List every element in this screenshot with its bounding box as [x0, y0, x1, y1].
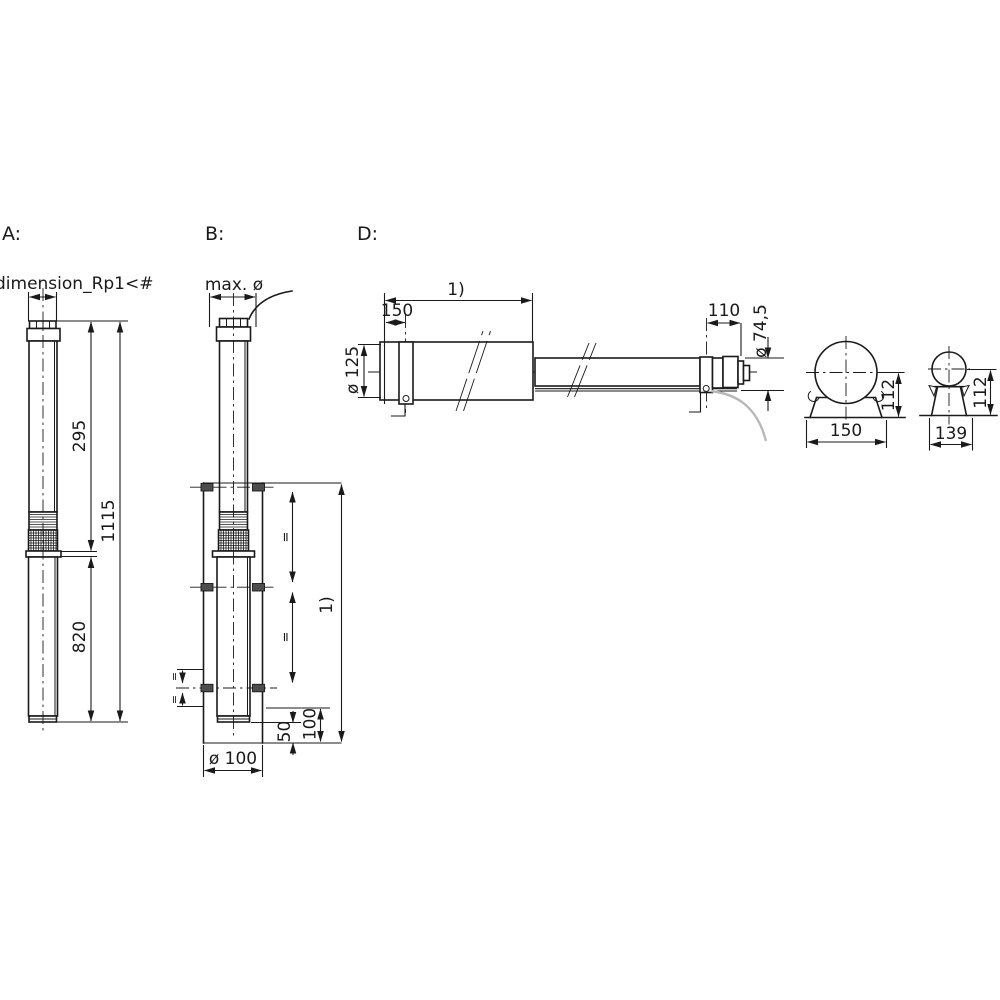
- dim-label-150: 150: [381, 301, 413, 321]
- cable-guide-right: [689, 393, 701, 412]
- dim-label-dia745: ø 74,5: [751, 304, 771, 358]
- dim-label-dia125: ø 125: [343, 346, 363, 394]
- connector-stub: [744, 366, 750, 381]
- pump-a-collar: [27, 329, 60, 342]
- dim-label-100: 100: [301, 708, 321, 740]
- pump-b-body: [213, 293, 255, 738]
- clamp-2-right: [253, 584, 265, 592]
- clamp-d-right: [700, 357, 713, 393]
- dim-label-max-diameter: max. ø: [205, 275, 263, 295]
- connector-block-2: [723, 357, 738, 388]
- view-a-extension-lines: [57, 552, 129, 723]
- view-a-label: A:: [2, 223, 21, 245]
- dim-label-ev112b: 112: [971, 376, 991, 408]
- dim-label-b-ref1: 1): [317, 596, 337, 613]
- thread-extension-lines: [29, 292, 57, 321]
- dim-label-1115: 1115: [99, 499, 119, 542]
- equal-mark-3: =: [168, 672, 181, 681]
- view-d: D: 1) 150 110: [343, 223, 784, 441]
- dim-label-d-ref1: 1): [447, 280, 464, 300]
- pump-a-plate: [26, 551, 61, 557]
- dim-label-ev150: 150: [830, 421, 862, 441]
- end-view-large: 150 112: [805, 336, 905, 448]
- view-d-label: D:: [357, 223, 378, 245]
- connector-block-1: [713, 358, 724, 388]
- equal-mark-2: =: [279, 632, 294, 643]
- equal-spacing-dims-right: = =: [279, 492, 294, 683]
- dim-label-110: 110: [708, 301, 740, 321]
- equal-mark-4: =: [168, 695, 181, 704]
- dim-label-50: 50: [275, 721, 295, 743]
- clamp-1-right: [253, 484, 265, 492]
- dim-label-dia100: ø 100: [209, 749, 257, 769]
- clamp-d-left: [399, 342, 413, 404]
- view-b: B: max. ø: [168, 223, 342, 777]
- dim-label-820: 820: [70, 621, 90, 653]
- view-a-dimensions: 295 820 1115: [57, 322, 129, 722]
- clamp-3-right: [253, 684, 265, 692]
- equal-mark-1: =: [279, 532, 294, 543]
- view-a: A: dimension_Rp1<#: [0, 223, 153, 731]
- view-b-label: B:: [205, 223, 224, 245]
- dim-label-ev112: 112: [879, 379, 899, 411]
- connector-end-cap: [738, 361, 744, 384]
- clamp-3-left: [201, 684, 213, 692]
- pump-dimension-drawing: A: dimension_Rp1<#: [0, 0, 1000, 1000]
- clamp-2-left: [201, 584, 213, 592]
- dim-label-295: 295: [70, 420, 90, 452]
- end-view-small: 139 112: [920, 346, 997, 451]
- dim-label-thread: dimension_Rp1<#: [0, 274, 153, 294]
- motor-d-tube: [535, 358, 700, 386]
- clamp-1-left: [201, 484, 213, 492]
- cable-guide-left: [391, 404, 405, 416]
- technical-drawing-canvas: A: dimension_Rp1<#: [0, 0, 1000, 1000]
- dim-label-ev139: 139: [935, 424, 967, 444]
- cable-line-d: [711, 391, 766, 441]
